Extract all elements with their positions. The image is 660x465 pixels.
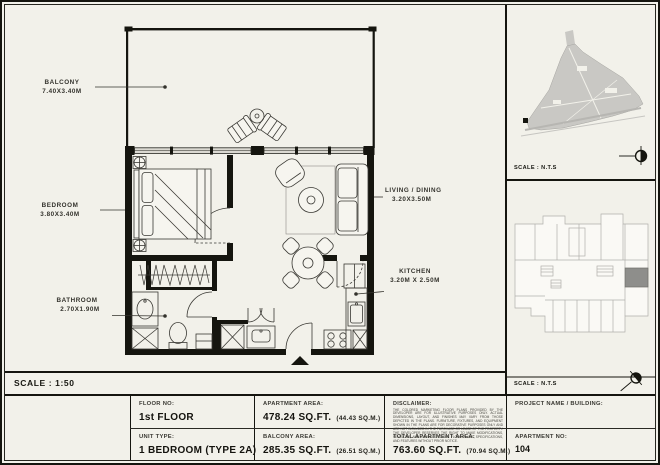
living-furniture bbox=[272, 156, 368, 290]
floor-no-cell: FLOOR NO: 1st FLOOR bbox=[131, 396, 254, 428]
floorplan-sheet: { "sheet": { "plan_scale": "SCALE : 1:50… bbox=[0, 0, 660, 465]
keyplan-panel bbox=[505, 180, 656, 394]
unit-type-label: UNIT TYPE: bbox=[139, 434, 254, 440]
total-area-metric: (70.94 SQ.M.) bbox=[466, 448, 510, 455]
disclaimer-label: DISCLAIMER: bbox=[393, 401, 506, 407]
balcony-furniture bbox=[226, 109, 287, 144]
apartment-no-value: 104 bbox=[515, 444, 655, 454]
balcony-area-label: BALCONY AREA: bbox=[263, 434, 384, 440]
balcony-area-value: 285.35 SQ.FT. bbox=[263, 445, 331, 456]
bathroom-dims: 2.70X1.90M bbox=[60, 306, 99, 313]
plan-scale-bar: SCALE : 1:50 bbox=[5, 371, 505, 394]
highlighted-unit bbox=[625, 268, 648, 287]
apartment-no-label: APARTMENT NO: bbox=[515, 434, 655, 440]
living-label: LIVING / DINING bbox=[385, 187, 442, 194]
north-arrow-icon bbox=[615, 368, 646, 394]
total-area-label: TOTAL APARTMENT AREA: bbox=[393, 434, 506, 440]
floor-no-label: FLOOR NO: bbox=[139, 401, 254, 407]
balcony-label: BALCONY bbox=[45, 79, 80, 86]
bathroom-fixtures bbox=[132, 292, 212, 349]
project-name-cell: PROJECT NAME / BUILDING: bbox=[507, 396, 655, 428]
project-location-marker bbox=[523, 118, 528, 123]
bedroom-label: BEDROOM bbox=[42, 202, 79, 209]
total-area-value: 763.60 SQ.FT. bbox=[393, 445, 461, 456]
balcony-dims: 7.40X3.40M bbox=[42, 88, 81, 95]
unit-type-value: 1 BEDROOM (TYPE 2A) bbox=[139, 445, 254, 456]
kitchen-label: KITCHEN bbox=[399, 268, 431, 275]
disclaimer-cell: DISCLAIMER: THE COLORED MARKETING FLOOR … bbox=[385, 396, 506, 428]
apartment-no-cell: APARTMENT NO: 104 bbox=[507, 429, 655, 460]
entry-marker-icon bbox=[291, 356, 309, 365]
apartment-area-label: APARTMENT AREA: bbox=[263, 401, 384, 407]
bedroom-dims: 3.80X3.40M bbox=[40, 211, 79, 218]
north-arrow-icon bbox=[619, 146, 647, 165]
bedroom-furniture bbox=[133, 157, 211, 252]
logo-cell bbox=[5, 396, 130, 460]
bathroom-label: BATHROOM bbox=[56, 297, 97, 304]
room-labels: BALCONY 7.40X3.40M BEDROOM 3.80X3.40M BA… bbox=[40, 79, 441, 313]
floor-no-value: 1st FLOOR bbox=[139, 412, 254, 423]
laundry-and-wc bbox=[221, 325, 275, 349]
balcony-area-metric: (26.51 SQ.M.) bbox=[336, 448, 380, 455]
masterplan-map bbox=[521, 30, 645, 136]
floorplan-drawing: BALCONY 7.40X3.40M BEDROOM 3.80X3.40M BA… bbox=[4, 4, 505, 371]
total-area-cell: TOTAL APARTMENT AREA: 763.60 SQ.FT.(70.9… bbox=[385, 429, 506, 460]
balcony-area-cell: BALCONY AREA: 285.35 SQ.FT.(26.51 SQ.M.) bbox=[255, 429, 384, 460]
window-wall bbox=[125, 146, 375, 155]
apartment-area-value: 478.24 SQ.FT. bbox=[263, 412, 331, 423]
masterplan-scale-label: SCALE : N.T.S bbox=[514, 165, 557, 171]
unit-type-cell: UNIT TYPE: 1 BEDROOM (TYPE 2A) bbox=[131, 429, 254, 460]
plan-scale-label: SCALE : 1:50 bbox=[5, 378, 75, 388]
kitchen-dims: 3.20M X 2.50M bbox=[390, 277, 440, 284]
keyplan-scale-label: SCALE : N.T.S bbox=[514, 381, 557, 387]
masterplan-panel bbox=[505, 4, 656, 180]
apartment-area-cell: APARTMENT AREA: 478.24 SQ.FT.(44.43 SQ.M… bbox=[255, 396, 384, 428]
apartment-area-metric: (44.43 SQ.M.) bbox=[336, 415, 380, 422]
living-dims: 3.20X3.50M bbox=[392, 196, 431, 203]
project-name-label: PROJECT NAME / BUILDING: bbox=[515, 401, 655, 407]
